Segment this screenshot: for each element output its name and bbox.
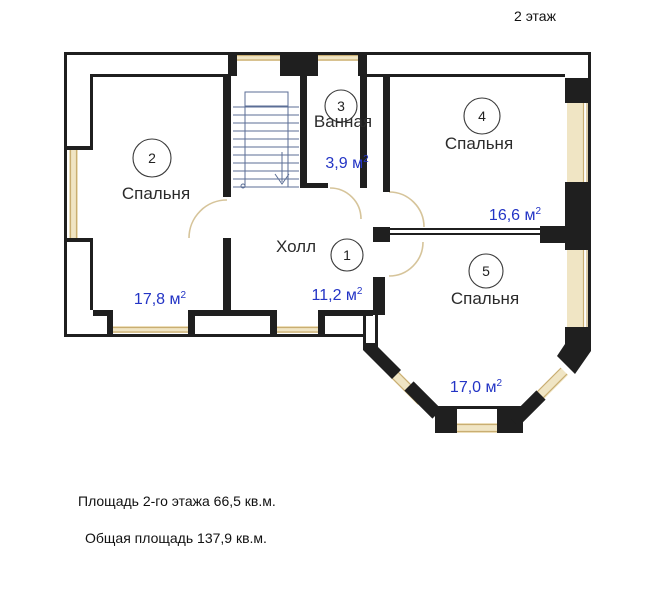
- wall: [363, 315, 366, 347]
- wall: [373, 227, 390, 242]
- door-arc: [330, 188, 361, 219]
- total-area-note: Общая площадь 137,9 кв.м.: [85, 530, 267, 546]
- wall: [93, 74, 228, 77]
- door-arc: [389, 242, 423, 276]
- room-area: 11,2 м2: [312, 286, 363, 304]
- wall: [540, 226, 567, 243]
- room-name: Холл: [276, 237, 316, 256]
- wall: [300, 74, 307, 188]
- room-number: 5: [482, 263, 490, 279]
- room-name: Ванная: [314, 112, 372, 131]
- room-name: Спальня: [445, 134, 513, 153]
- wall: [358, 52, 367, 76]
- wall: [107, 310, 113, 335]
- room-area: 3,9 м2: [325, 154, 369, 172]
- room-area: 17,0 м2: [450, 378, 503, 396]
- page-title: 2 этаж: [514, 8, 557, 24]
- room-area: 16,6 м2: [489, 206, 542, 224]
- wall: [565, 78, 591, 103]
- wall-bay-pier: [557, 327, 591, 374]
- stair-landing: [245, 92, 288, 106]
- wall: [223, 238, 231, 310]
- wall: [318, 310, 325, 335]
- room-name: Спальня: [451, 289, 519, 308]
- wall: [375, 315, 378, 345]
- area-value: 17,8 м: [134, 291, 181, 308]
- floor-area-note: Площадь 2-го этажа 66,5 кв.м.: [78, 493, 276, 509]
- area-sup: 2: [536, 206, 542, 217]
- door-arc: [389, 192, 424, 227]
- window-line: [584, 250, 588, 327]
- wall: [280, 52, 288, 76]
- area-value: 3,9 м: [325, 155, 363, 172]
- room-number: 2: [148, 150, 156, 166]
- room-names: Холл Спальня Ванная Спальня Спальня: [122, 112, 519, 308]
- area-value: 17,0 м: [450, 379, 497, 396]
- wall: [64, 238, 93, 242]
- wall: [223, 74, 231, 197]
- wall: [373, 277, 385, 315]
- wall: [64, 146, 93, 150]
- window-line: [584, 103, 588, 182]
- window: [567, 250, 584, 327]
- wall-bay-pier: [363, 343, 401, 379]
- room-number: 1: [343, 247, 351, 263]
- wall: [64, 52, 67, 337]
- door-arc: [189, 200, 227, 238]
- wall: [90, 238, 93, 310]
- floor-plan-diagram: 1 2 3 4 5 Холл Спальня Ванная Спальня Сп…: [0, 0, 671, 600]
- wall: [64, 52, 591, 55]
- wall: [367, 74, 565, 77]
- wall: [390, 228, 540, 230]
- room-number: 4: [478, 108, 486, 124]
- stairs: [233, 92, 299, 188]
- wall: [390, 233, 540, 235]
- wall: [565, 182, 591, 250]
- wall: [383, 74, 390, 192]
- wall: [270, 310, 277, 335]
- area-sup: 2: [181, 290, 187, 301]
- area-sup: 2: [363, 154, 369, 165]
- wall: [300, 183, 328, 188]
- wall: [188, 310, 195, 335]
- wall: [228, 52, 237, 76]
- area-value: 11,2 м: [312, 287, 357, 304]
- wall: [288, 52, 318, 76]
- room-name: Спальня: [122, 184, 190, 203]
- area-value: 16,6 м: [489, 207, 536, 224]
- wall: [188, 310, 277, 316]
- room-area: 17,8 м2: [134, 290, 187, 308]
- area-sup: 2: [497, 378, 503, 389]
- area-sup: 2: [357, 286, 363, 297]
- floor-plan-page: 1 2 3 4 5 Холл Спальня Ванная Спальня Сп…: [0, 0, 671, 600]
- window: [567, 103, 584, 182]
- wall: [90, 74, 93, 150]
- stair-treads: [233, 107, 299, 187]
